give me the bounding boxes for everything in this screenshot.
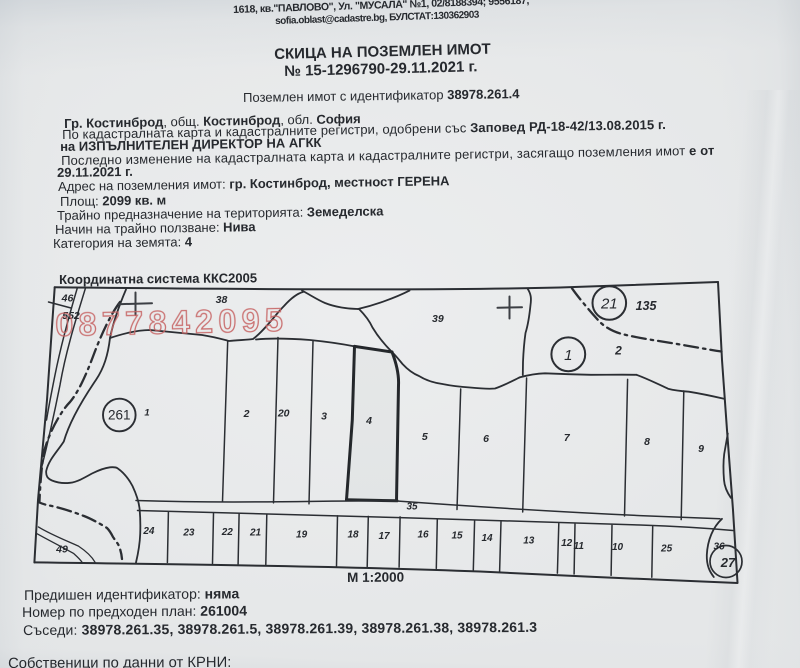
svg-text:22: 22 xyxy=(221,527,234,538)
svg-text:1: 1 xyxy=(564,347,572,364)
svg-text:35: 35 xyxy=(406,502,418,513)
svg-text:3: 3 xyxy=(321,411,327,423)
svg-text:11: 11 xyxy=(574,541,585,552)
svg-text:5: 5 xyxy=(422,431,428,443)
svg-text:16: 16 xyxy=(417,530,429,541)
svg-text:21: 21 xyxy=(249,528,262,539)
svg-text:10: 10 xyxy=(612,542,624,553)
svg-text:23: 23 xyxy=(182,528,195,539)
svg-text:4: 4 xyxy=(365,415,372,427)
svg-text:36: 36 xyxy=(713,542,725,553)
svg-text:25: 25 xyxy=(660,544,673,555)
svg-text:14: 14 xyxy=(481,533,493,544)
svg-text:39: 39 xyxy=(432,313,444,325)
svg-text:20: 20 xyxy=(277,408,290,420)
svg-text:21: 21 xyxy=(600,296,618,313)
svg-text:9: 9 xyxy=(698,443,704,455)
svg-text:261: 261 xyxy=(108,408,131,423)
svg-text:17: 17 xyxy=(378,531,390,542)
svg-text:27: 27 xyxy=(720,555,736,570)
svg-text:2: 2 xyxy=(614,344,622,358)
svg-text:18: 18 xyxy=(347,530,359,541)
svg-text:1: 1 xyxy=(144,408,149,419)
svg-text:6: 6 xyxy=(483,433,489,445)
svg-text:7: 7 xyxy=(564,432,571,444)
svg-text:135: 135 xyxy=(636,299,658,313)
svg-text:13: 13 xyxy=(523,536,535,547)
svg-text:12: 12 xyxy=(561,538,573,549)
svg-text:46: 46 xyxy=(61,293,74,305)
svg-text:15: 15 xyxy=(451,531,463,542)
svg-text:8: 8 xyxy=(644,436,650,448)
svg-text:24: 24 xyxy=(142,526,155,537)
svg-text:2: 2 xyxy=(243,408,250,420)
svg-text:49: 49 xyxy=(55,544,68,556)
svg-text:19: 19 xyxy=(296,530,308,541)
